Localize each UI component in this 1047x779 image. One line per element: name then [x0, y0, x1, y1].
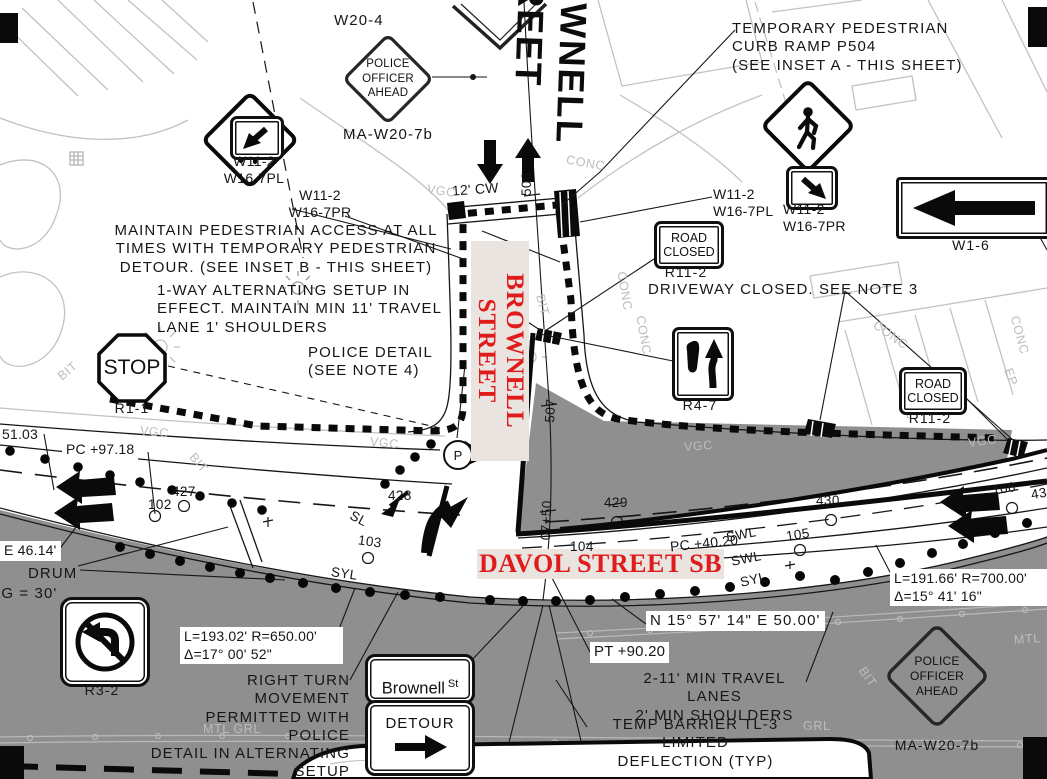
detour-text: DETOUR: [385, 715, 454, 732]
police-officer-ahead-text: POLICE OFFICER AHEAD: [343, 34, 433, 124]
crosswalk-width-label: 12' CW: [451, 179, 499, 200]
w11-2-w16-7pr-label-left: W11-2W16-7PR: [288, 187, 352, 221]
w1-6-label: W1-6: [896, 237, 1046, 254]
r4-7-sign: [672, 327, 734, 401]
vgc-label-1: VGC: [139, 424, 169, 441]
r4-7-label: R4-7: [672, 397, 728, 414]
ma-w20-7b-label-2: MA-W20-7b: [884, 737, 990, 754]
drum-spacing-label: SPACING = 30': [0, 585, 57, 603]
driveway-closed-note: DRIVEWAY CLOSED. SEE NOTE 3: [648, 281, 918, 299]
ma-w20-7b-label-1: MA-W20-7b: [333, 126, 443, 144]
detour-right-arrow-icon: [387, 733, 453, 761]
police-detail-marker: P: [443, 440, 473, 470]
pc-97-18: PC +97.18: [62, 440, 138, 460]
station-427: 427: [172, 484, 196, 499]
road-closed-sign-2: ROAD CLOSED: [899, 367, 967, 415]
station-102: 102: [148, 497, 172, 512]
police-detail-p: P: [454, 448, 463, 463]
road-closed-text-1: ROAD CLOSED: [663, 231, 714, 259]
traffic-control-plan: POLICE OFFICER AHEAD ROAD CLOSED ROAD CL…: [0, 0, 1047, 779]
w11-2-w16-7pr-label-right: W11-2W16-7PR: [783, 201, 846, 235]
police-officer-ahead-sign-2: POLICE OFFICER AHEAD: [884, 623, 990, 729]
grl-label-right: GRL: [803, 719, 831, 733]
brownell-sign-text: Brownell St: [382, 659, 459, 699]
stop-sign: STOP: [96, 332, 168, 404]
w1-6-sign: [896, 177, 1047, 239]
r11-2-label-1: R11-2: [654, 264, 718, 281]
pt-90-20: PT +90.20: [590, 642, 669, 663]
stop-text: STOP: [96, 332, 168, 404]
station-428: 428: [388, 488, 412, 503]
brownell-street-title-top: BROWNELL STREET: [506, 0, 599, 105]
w20-4-label: W20-4: [334, 12, 384, 30]
station-430: 430: [816, 493, 840, 508]
temp-barrier-note: TEMP BARRIER TL-3 LIMITED DEFLECTION (TY…: [583, 716, 808, 771]
road-closed-sign-1: ROAD CLOSED: [654, 221, 724, 269]
curve2-data: L=191.66' R=700.00' Δ=15° 41' 16": [890, 569, 1047, 606]
temp-ped-ramp-note: TEMPORARY PEDESTRIAN CURB RAMP P504 (SEE…: [732, 20, 963, 75]
r1-1-label: R1-1: [96, 400, 168, 417]
station-429: 429: [604, 495, 628, 510]
vgc-label-2: VGC: [369, 435, 399, 452]
bearing-label: N 15° 57' 14" E 50.00': [646, 611, 825, 631]
brownell-sign-name: Brownell: [382, 680, 445, 698]
mtl-grl-label-left: MTL GRL: [203, 722, 261, 736]
station-507: 507: [542, 398, 559, 423]
detour-sign: DETOUR: [365, 700, 475, 776]
r3-2-label: R3-2: [60, 682, 144, 699]
w11-2-w16-7pl-label-right: W11-2W16-7PL: [713, 186, 773, 220]
no-left-turn-icon: [70, 607, 140, 677]
brownell-sign-suffix: St: [448, 678, 458, 690]
maintain-ped-note: MAINTAIN PEDESTRIAN ACCESS AT ALL TIMES …: [70, 222, 482, 277]
police-officer-ahead-text-2: POLICE OFFICER AHEAD: [884, 623, 990, 729]
drum-label: DRUM: [28, 565, 77, 583]
large-left-arrow-icon: [907, 186, 1041, 230]
station-51-03: 51.03: [2, 426, 38, 444]
station-507-50: 07+50: [538, 500, 554, 540]
station-506: 506: [519, 172, 534, 196]
vgc-label-3: VGC: [684, 438, 714, 454]
keep-right-symbol-icon: [681, 336, 725, 392]
e-46-14: E 46.14': [0, 541, 61, 561]
r11-2-label-2: R11-2: [899, 410, 961, 427]
arrow-down-right-icon: [795, 175, 829, 201]
brownell-street-name-sign: Brownell St: [365, 654, 475, 704]
station-103: 103: [357, 532, 383, 550]
road-closed-text-2: ROAD CLOSED: [907, 377, 958, 405]
police-detail-note: POLICE DETAIL (SEE NOTE 4): [308, 344, 433, 381]
curve1-data: L=193.02' R=650.00' Δ=17° 00' 52": [180, 627, 343, 664]
w11-2-w16-7pl-label-left: W11-2W16-7PL: [214, 153, 294, 187]
police-officer-ahead-sign: POLICE OFFICER AHEAD: [343, 34, 433, 124]
r3-2-sign: [60, 597, 150, 687]
mtl-label-right: MTL: [1014, 631, 1042, 647]
pedestrian-crossing-sign-2: [762, 80, 854, 172]
station-431-partial: 43: [1030, 485, 1047, 503]
one-way-note: 1-WAY ALTERNATING SETUP IN EFFECT. MAINT…: [157, 282, 442, 337]
station-104: 104: [570, 539, 594, 554]
arrow-down-left-icon: [240, 125, 274, 151]
